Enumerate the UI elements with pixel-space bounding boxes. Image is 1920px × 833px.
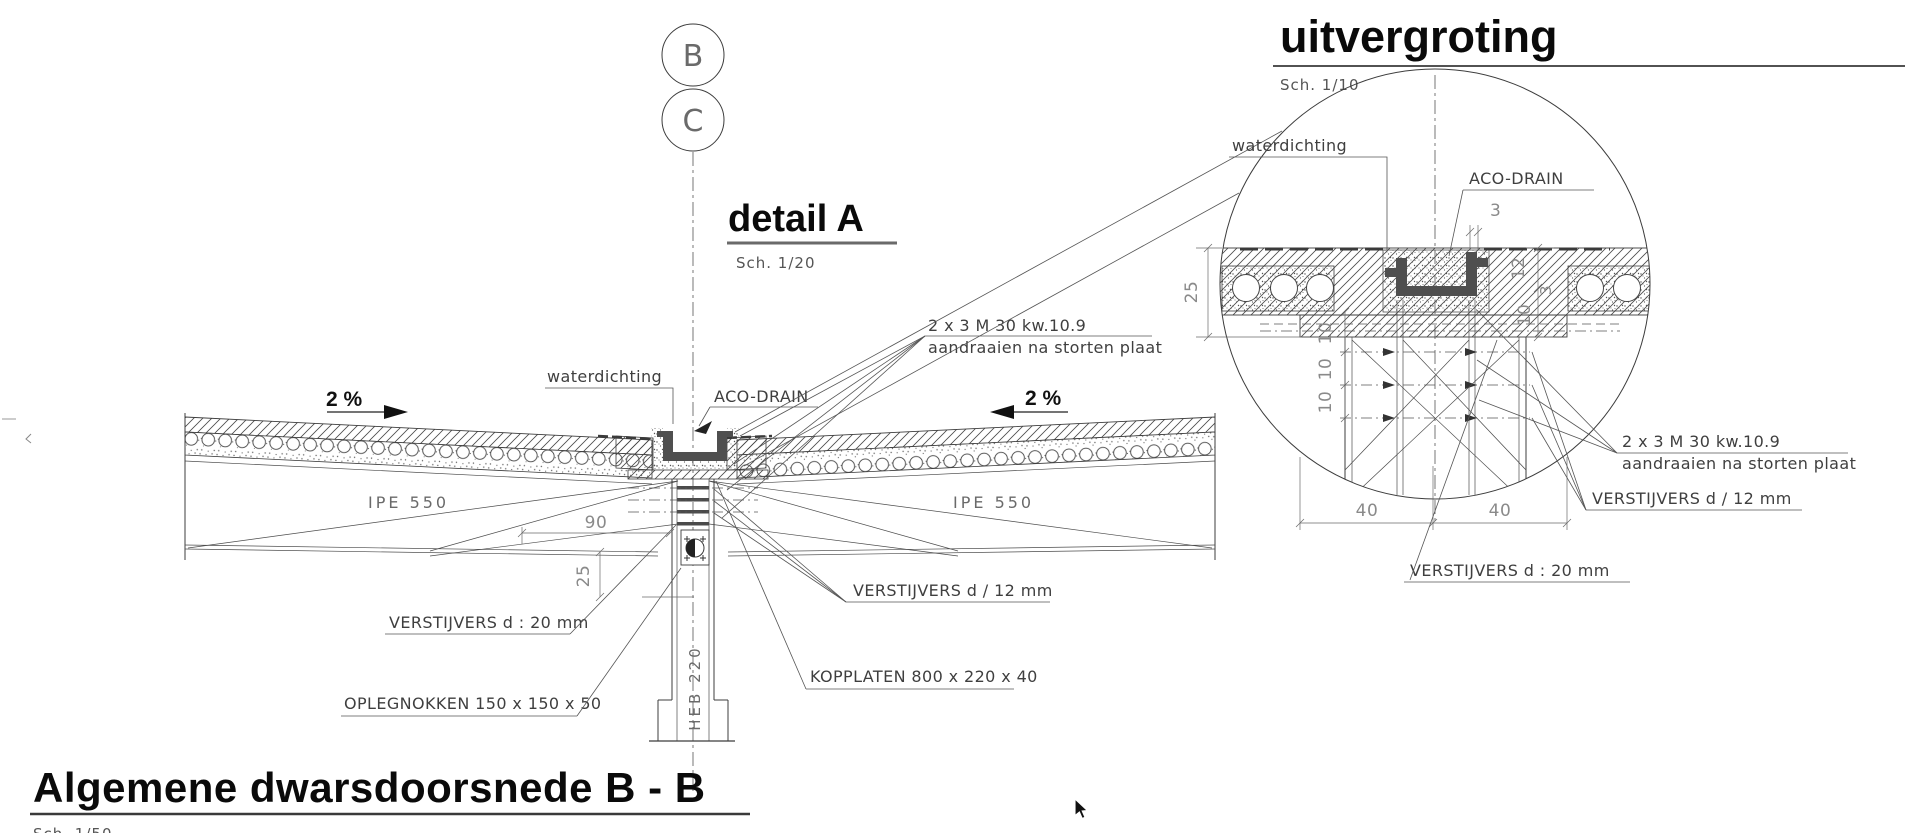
dim-12-text: 12	[1509, 257, 1529, 280]
beam-left-label: IPE 550	[368, 493, 449, 512]
drain-channel-lip-right	[727, 431, 733, 437]
slope-left-arrow	[384, 405, 408, 419]
acodrain-arrow	[694, 421, 712, 434]
marker-c-label: C	[683, 104, 704, 139]
mouse-cursor	[1075, 799, 1087, 819]
slope-left: 2 %	[326, 388, 408, 419]
enlargement-view: 25 3 12 3 10	[1182, 69, 1856, 582]
dim-25-text: 25	[574, 565, 594, 588]
bolts-line1-text: 2 x 3 M 30 kw.10.9	[928, 316, 1086, 335]
slope-right: 2 %	[990, 387, 1068, 419]
detail-a-title: detail A	[728, 198, 864, 240]
label-oplegnokken: OPLEGNOKKEN 150 x 150 x 50	[341, 568, 681, 716]
dim-40-left-text: 40	[1356, 501, 1379, 521]
bolts-enl-line2-text: aandraaien na storten plaat	[1622, 454, 1856, 473]
section-title: Algemene dwarsdoorsnede B - B	[33, 764, 706, 811]
dim-3-side-text: 3	[1537, 285, 1555, 295]
label-waterdichting-right: waterdichting	[1229, 136, 1387, 250]
label-acodrain-right: ACO-DRAIN	[1449, 169, 1594, 256]
channel-lip-left	[1385, 268, 1396, 277]
stiff12-text: VERSTIJVERS d / 12 mm	[853, 581, 1053, 600]
void-circle	[1577, 275, 1604, 302]
drain-channel	[663, 431, 727, 461]
slope-right-arrow	[990, 405, 1014, 419]
detail-a-view: HEB 220 2 % 2 % IPE 550 IPE 550 90	[185, 316, 1215, 741]
section-scale: Sch. 1/50	[33, 825, 113, 833]
dim-10-3-text: 10	[1316, 391, 1336, 414]
slope-right-label: 2 %	[1025, 387, 1062, 410]
bottom-flange-right-1	[728, 545, 1215, 552]
stiff20-enl-text: VERSTIJVERS d : 20 mm	[1410, 561, 1610, 580]
dim-10-1-text: 10	[1316, 322, 1336, 345]
label-stiff12-right: VERSTIJVERS d / 12 mm	[1532, 352, 1802, 510]
dim-90-text: 90	[585, 513, 608, 533]
enlargement-title: uitvergroting	[1280, 11, 1558, 62]
beam-right-label: IPE 550	[953, 493, 1034, 512]
waterdichting-text: waterdichting	[547, 367, 662, 386]
label-stiff20-left: VERSTIJVERS d : 20 mm	[385, 525, 676, 634]
label-waterdichting-left: waterdichting	[545, 367, 673, 424]
bolts-line2-text: aandraaien na storten plaat	[928, 338, 1162, 357]
acodrain-enl-text: ACO-DRAIN	[1469, 169, 1564, 188]
channel-lip-right	[1477, 258, 1488, 267]
bolts-enl-line1-text: 2 x 3 M 30 kw.10.9	[1622, 432, 1780, 451]
section-title-block: Algemene dwarsdoorsnede B - B Sch. 1/50	[30, 764, 750, 833]
bottom-flange-left-2	[185, 549, 658, 556]
joint-grout-under	[653, 461, 737, 469]
enlargement-scale: Sch. 1/10	[1280, 76, 1360, 94]
stiff12-enl-text: VERSTIJVERS d / 12 mm	[1592, 489, 1792, 508]
void-circle	[1307, 275, 1334, 302]
marker-b-label: B	[683, 39, 704, 74]
drain-channel-lip-left	[657, 431, 663, 437]
dim-3-top: 3	[1466, 201, 1501, 250]
bracing-line	[709, 481, 958, 551]
enlargement-title-block: uitvergroting Sch. 1/10	[1273, 11, 1905, 94]
dim-40-40: 40 40	[1296, 457, 1571, 530]
oplegnokken-text: OPLEGNOKKEN 150 x 150 x 50	[344, 694, 602, 713]
bottom-flange-right-2	[728, 549, 1215, 556]
bracing-line	[709, 481, 1212, 548]
detail-a-scale: Sch. 1/20	[736, 254, 816, 272]
bracing-line	[430, 481, 678, 551]
technical-drawing-canvas: B C detail A Sch. 1/20	[0, 0, 1920, 833]
detail-a-title-block: detail A Sch. 1/20	[727, 198, 897, 272]
void-circle	[1614, 275, 1641, 302]
acodrain-text: ACO-DRAIN	[714, 387, 809, 406]
dim-10-2-text: 10	[1316, 358, 1336, 381]
void-circle	[1233, 275, 1260, 302]
column-label: HEB 220	[686, 645, 704, 730]
dim-25-enl-text: 25	[1182, 281, 1202, 304]
channel-base	[1396, 286, 1477, 296]
label-bolts-left: 2 x 3 M 30 kw.10.9 aandraaien na storten…	[722, 316, 1162, 518]
joint-slab-left	[616, 436, 653, 470]
dim-10-side-text: 10	[1515, 304, 1535, 327]
label-stiff20-right: VERSTIJVERS d : 20 mm	[1404, 340, 1630, 582]
dim-3-top-text: 3	[1490, 201, 1501, 221]
bottom-flange-left-1	[185, 545, 658, 552]
kopplaten-text: KOPPLATEN 800 x 220 x 40	[810, 667, 1038, 686]
slope-left-label: 2 %	[326, 388, 363, 411]
waterdichting-enl-text: waterdichting	[1232, 136, 1347, 155]
void-circle	[1271, 275, 1298, 302]
bracing-line	[430, 524, 678, 556]
dim-90: 90	[518, 513, 674, 544]
stiff20-text: VERSTIJVERS d : 20 mm	[389, 613, 589, 632]
scan-artifact-mark	[26, 434, 31, 443]
dim-40-right-text: 40	[1489, 501, 1512, 521]
